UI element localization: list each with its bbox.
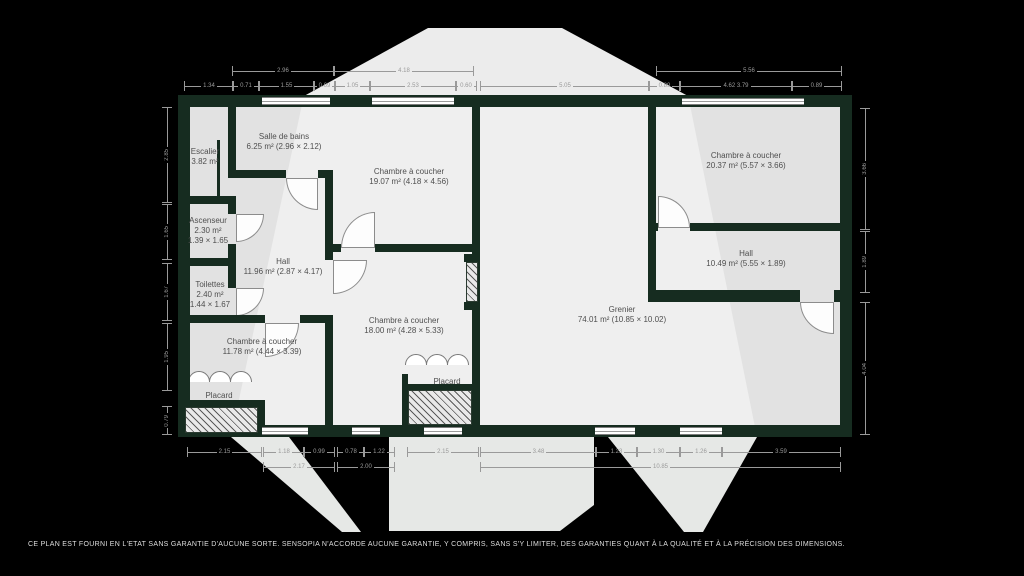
room-label-placard-2: Placard [433, 377, 460, 387]
room-label-placard-1: Placard [205, 391, 232, 401]
room-label-hall-2: Hall10.49 m² (5.55 × 1.89) [706, 249, 785, 269]
dimension-label: 1.22 [363, 447, 395, 457]
hatch-placard [408, 390, 472, 425]
room-label-hall-1: Hall11.96 m² (2.87 × 4.17) [244, 257, 323, 277]
window [424, 427, 462, 435]
dimension-label: 1.26 [679, 447, 723, 457]
dimension-label: 1.34 [184, 81, 234, 91]
dimension-label: 2.00 [337, 462, 395, 472]
window [372, 97, 454, 105]
dimension-label: 3.59 [721, 447, 841, 457]
dimension-label: 1.55 [258, 81, 315, 91]
room-label-ascenseur: Ascenseur2.30 m²1.39 × 1.65 [188, 216, 228, 246]
room-label-escalier: Escalier3.82 m² [191, 147, 219, 167]
dimension-label: 1.18 [263, 447, 305, 457]
wall [178, 400, 258, 407]
dimension-label: 1.23 [595, 447, 638, 457]
dimension-label: 0.60 [455, 81, 477, 91]
dimension-label: 1.95 [162, 323, 172, 391]
rail-arc [188, 371, 210, 382]
window [682, 98, 804, 105]
hatch-duct [466, 262, 478, 302]
dimension-label: 0.71 [232, 81, 260, 91]
wall [464, 254, 480, 262]
dimension-label: 0.79 [162, 406, 172, 435]
disclaimer-text: CE PLAN EST FOURNI EN L'ETAT SANS GARANT… [28, 541, 845, 548]
dimension-label: 4.18 [334, 66, 474, 76]
dimension-label: 10.85 [480, 462, 841, 472]
dimension-label: 0.99 [303, 447, 335, 457]
wall [690, 223, 852, 231]
room-label-salle-de-bains: Salle de bains6.25 m² (2.96 × 2.12) [247, 132, 322, 152]
dimension-label: 3.48 [480, 447, 597, 457]
dimension-label: 2.53 [369, 81, 457, 91]
window [595, 427, 635, 435]
window [680, 427, 722, 435]
wall [228, 107, 236, 175]
rail-arc [405, 354, 427, 365]
window [352, 427, 380, 435]
wall [840, 95, 852, 437]
wall [648, 223, 658, 231]
floorplan-page: Escalier3.82 m² Salle de bains6.25 m² (2… [0, 0, 1024, 576]
wall [834, 290, 840, 302]
room-label-chambre-1: Chambre à coucher19.07 m² (4.18 × 4.56) [369, 167, 448, 187]
rail-arc [230, 371, 252, 382]
wall [178, 258, 236, 266]
window [262, 427, 308, 435]
wall [325, 172, 333, 260]
dimension-label: 0.89 [648, 81, 681, 91]
dimension-label: 0.69 [313, 81, 336, 91]
dimension-label: 1.05 [334, 81, 371, 91]
room-label-chambre-3: Chambre à coucher11.78 m² (4.44 × 3.39) [223, 337, 302, 357]
dimension-label: 1.30 [636, 447, 681, 457]
dimension-label: 2.17 [263, 462, 335, 472]
dimension-label: 0.89 [791, 81, 842, 91]
dimension-label: 3.66 [860, 108, 870, 230]
wall [648, 107, 656, 302]
rail-arc [426, 354, 448, 365]
hatch-placard [185, 407, 258, 433]
dimension-label: 0.78 [337, 447, 365, 457]
room-label-grenier: Grenier74.01 m² (10.85 × 10.02) [578, 305, 666, 325]
room-label-toilettes: Toilettes2.40 m²1.44 × 1.67 [190, 280, 230, 310]
dimension-label: 1.65 [162, 204, 172, 260]
dimension-label: 2.15 [187, 447, 262, 457]
dimension-label: 1.89 [860, 231, 870, 293]
rail-arc [447, 354, 469, 365]
wall [228, 196, 236, 214]
wall [325, 317, 333, 429]
dimension-label: 2.15 [407, 447, 479, 457]
dimension-label: 4.62 3.79 [679, 81, 793, 91]
window [262, 97, 330, 105]
closet-rail [405, 352, 471, 365]
wall [228, 170, 286, 178]
room-label-chambre-2: Chambre à coucher20.37 m² (5.57 × 3.66) [706, 151, 785, 171]
dimension-label: 5.05 [480, 81, 650, 91]
dimension-label: 2.96 [232, 66, 334, 76]
closet-rail [188, 369, 256, 382]
dimension-label: 1.67 [162, 263, 172, 321]
wall [648, 290, 800, 302]
wall [178, 315, 265, 323]
wall [375, 244, 480, 252]
wall [464, 302, 480, 310]
wall [178, 95, 190, 437]
room-label-chambre-4: Chambre à coucher18.00 m² (4.28 × 5.33) [364, 316, 443, 336]
wall [333, 244, 341, 252]
dimension-label: 2.85 [162, 107, 172, 203]
dimension-label: 5.56 [656, 66, 842, 76]
dimension-label: 4.04 [860, 302, 870, 435]
rail-arc [209, 371, 231, 382]
